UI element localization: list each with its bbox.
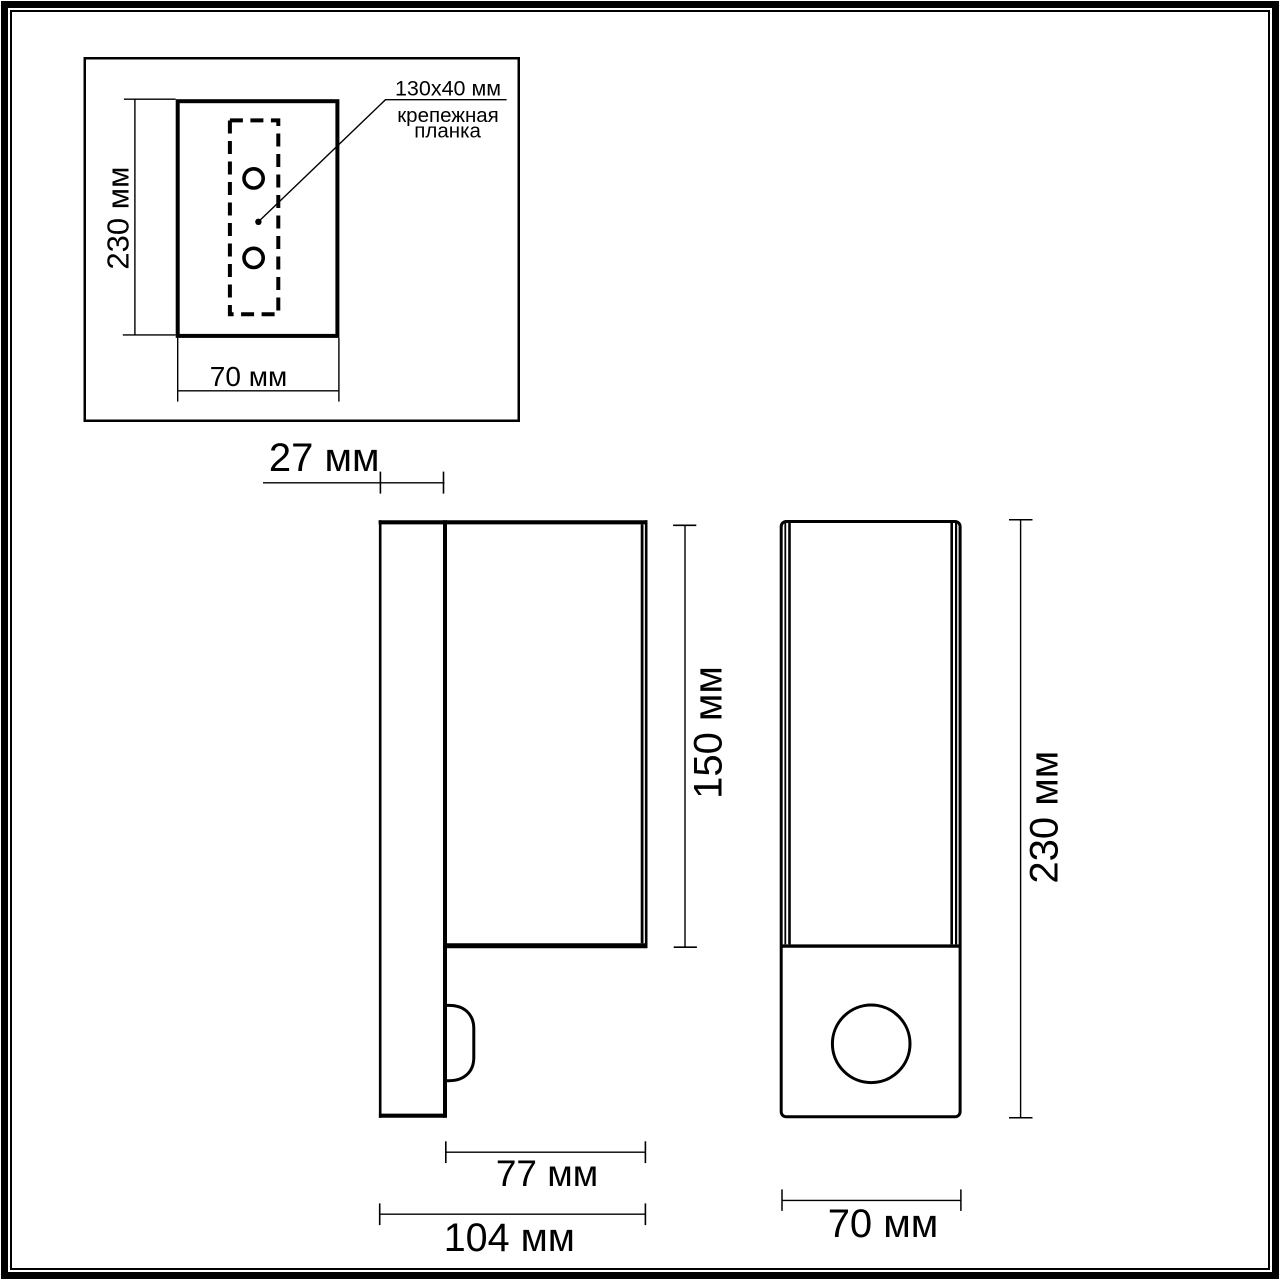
svg-text:70 мм: 70 мм: [828, 1202, 939, 1246]
svg-text:70 мм: 70 мм: [210, 361, 287, 392]
svg-text:230 мм: 230 мм: [1023, 751, 1067, 884]
svg-text:130x40 мм: 130x40 мм: [395, 76, 501, 100]
svg-text:77 мм: 77 мм: [496, 1153, 598, 1194]
svg-text:104 мм: 104 мм: [444, 1216, 575, 1260]
svg-text:27 мм: 27 мм: [269, 436, 380, 480]
svg-text:150 мм: 150 мм: [686, 666, 730, 799]
svg-text:планка: планка: [414, 119, 481, 142]
svg-text:230 мм: 230 мм: [101, 167, 136, 270]
